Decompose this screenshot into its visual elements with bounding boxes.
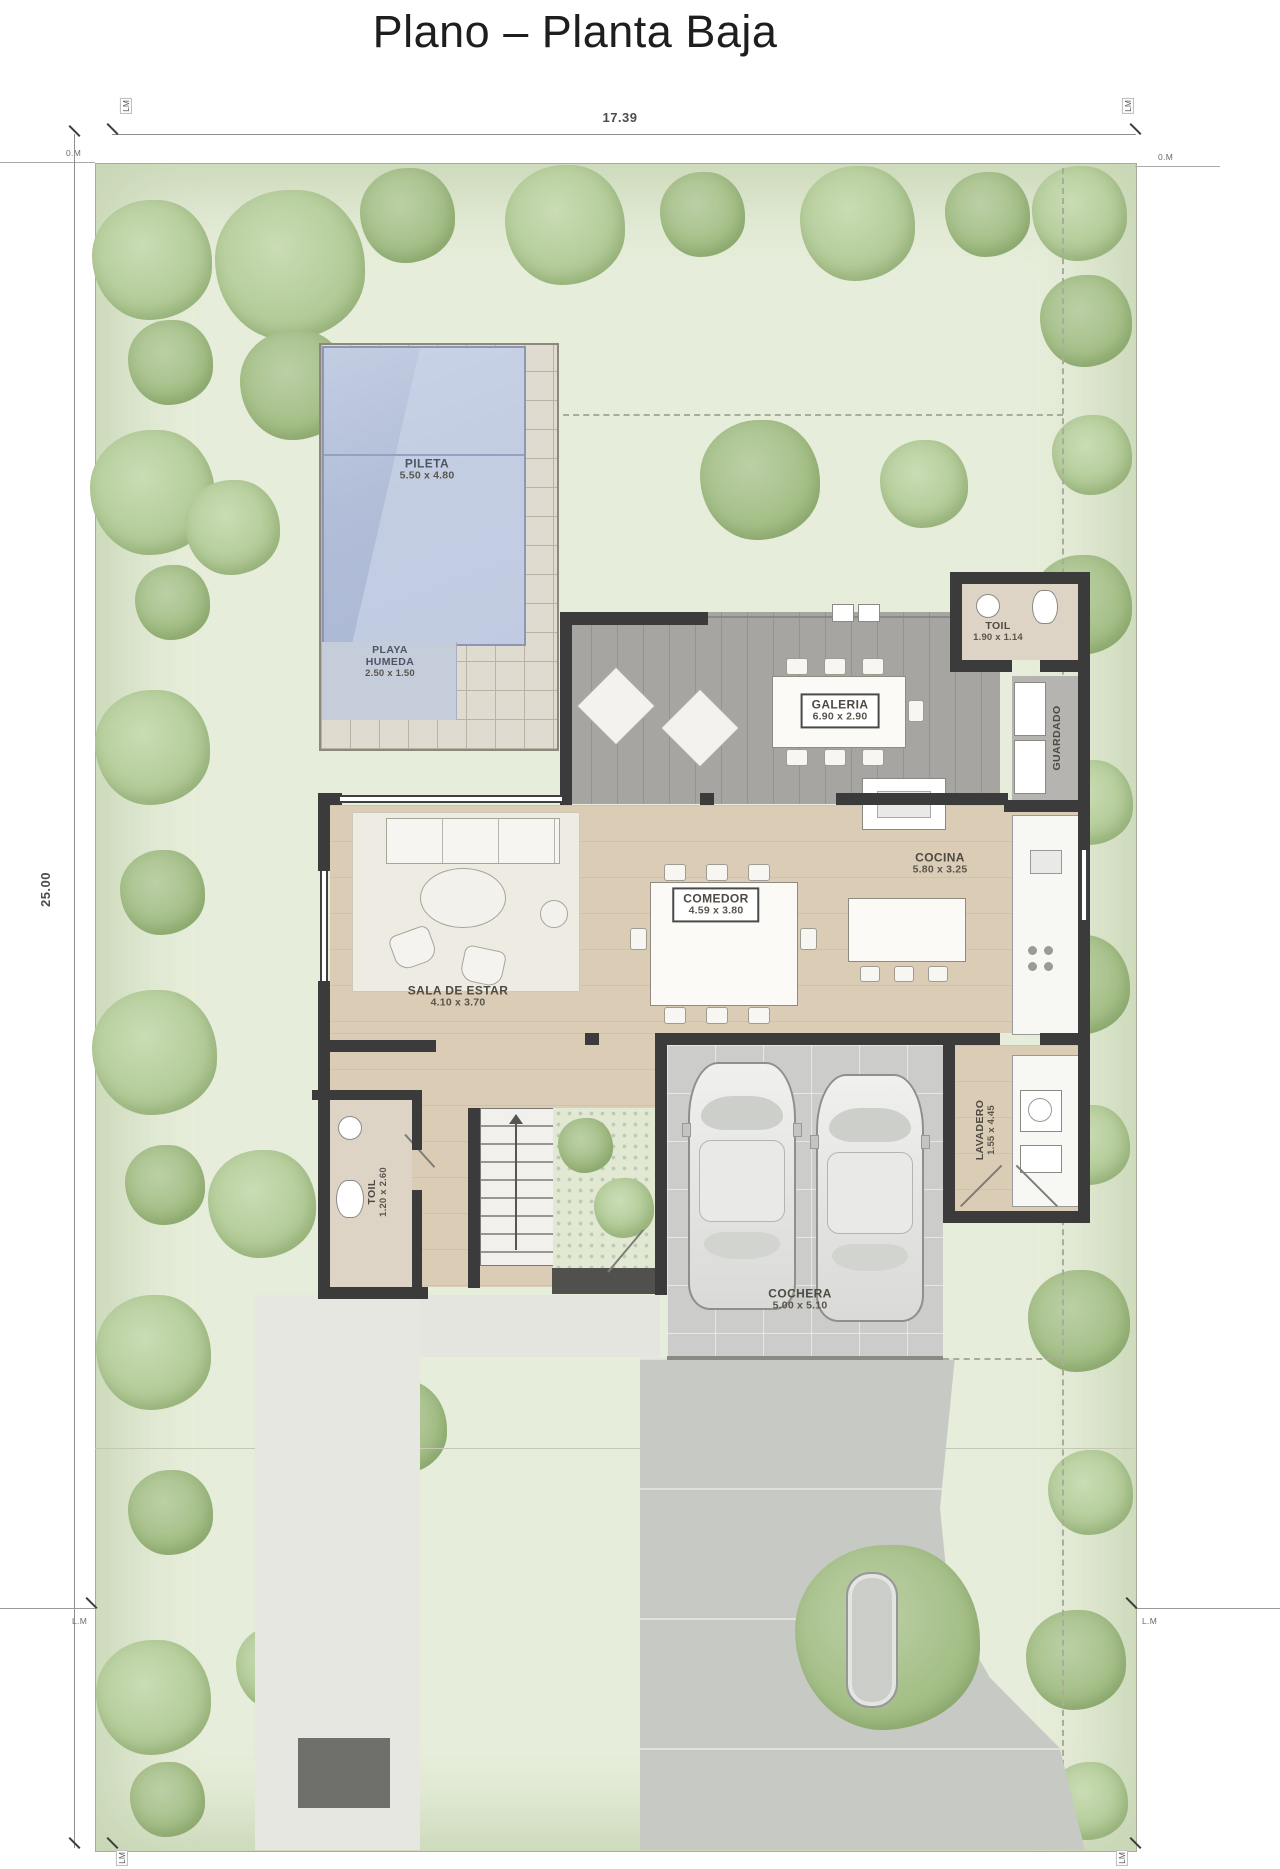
lm-line [0,1608,95,1609]
tree [1032,166,1127,261]
shelf [1014,682,1046,736]
tree [208,1150,316,1258]
lm-marker: LM [1122,98,1134,114]
tree [128,320,213,405]
wall [412,1090,422,1150]
tree [128,1470,213,1555]
wall [950,572,1090,584]
room-name: TOIL [985,620,1010,632]
label-cocina: COCINA 5.80 x 3.25 [913,851,968,876]
label-toil-top: TOIL 1.90 x 1.14 [973,621,1023,643]
windshield [701,1096,782,1130]
lot-width-dimension: 17.39 [570,110,670,125]
room-size: 5.00 x 5.10 [768,1301,831,1313]
washer-drum [1028,1098,1052,1122]
tree [1026,1610,1126,1710]
tree [880,440,968,528]
tree [1048,1450,1133,1535]
wc [1032,590,1058,624]
wall [950,660,1012,672]
wall [655,1033,667,1295]
wall [1078,572,1090,812]
wall [700,793,714,805]
counter-sink [1030,850,1062,874]
wall [318,1040,436,1052]
label-pileta: PILETA 5.50 x 4.80 [400,457,455,482]
room-size: 4.59 x 3.80 [683,906,748,918]
car-right [816,1074,924,1322]
mirror [793,1123,802,1137]
room-name: COCINA [915,850,965,864]
tree [1028,1270,1130,1372]
wall [560,612,708,625]
chair [908,700,924,722]
stove-burner [1028,962,1037,971]
wall [318,793,330,871]
wc [336,1180,364,1218]
lm-side-marker: L.M [1142,1616,1157,1626]
chair [862,658,884,675]
tree [92,200,212,320]
galeria-edge-line [708,616,952,618]
chair [664,1007,686,1024]
room-name: GUARDADO [1051,705,1063,770]
wall [943,1211,1090,1223]
floor-plan: Plano – Planta Baja [0,0,1280,1869]
garden-line [95,1448,1135,1449]
planter-oval [846,1572,898,1708]
lot-line-ext [1135,166,1220,167]
lot-line-ext [0,162,95,163]
room-name: PILETA [405,456,449,470]
chair [824,749,846,766]
stair-arrow-head [509,1114,523,1124]
label-galeria: GALERIA 6.90 x 2.90 [801,693,880,728]
wall [585,1033,599,1045]
zero-m-marker: 0.M [1158,152,1173,162]
rear-window [832,1244,909,1271]
label-lavadero: LAVADERO 1.55 x 4.45 [975,1100,997,1161]
room-size: 2.50 x 1.50 [353,668,427,679]
room-size: 6.90 x 2.90 [812,712,869,724]
chair [706,1007,728,1024]
kitchen-counter [1012,815,1080,1035]
chair [748,864,770,881]
tree [1052,415,1132,495]
lm-marker: LM [120,98,132,114]
label-guardado: GUARDADO [1052,705,1064,770]
tree [95,690,210,805]
stair-arrow [515,1122,517,1250]
tree [130,1762,205,1837]
washer [1020,1090,1062,1132]
chair [786,658,808,675]
courtyard-plant [594,1178,654,1238]
tree [185,480,280,575]
chair [748,1007,770,1024]
wall [468,1108,480,1288]
stool [860,966,880,982]
label-cochera: COCHERA 5.00 x 5.10 [768,1287,831,1312]
kitchen-island [848,898,966,962]
room-size: 5.80 x 3.25 [913,865,968,877]
wall [318,981,330,1299]
washbasin [976,594,1000,618]
chair [706,864,728,881]
washbasin [338,1116,362,1140]
wall [836,793,1008,805]
dimension-line-left [74,134,75,1848]
dimension-line-top [112,134,1136,135]
tree [125,1145,205,1225]
garage-door-line [667,1356,943,1360]
tree [700,420,820,540]
wall [943,1033,955,1223]
room-size: 5.50 x 4.80 [400,471,455,483]
lm-side-marker: L.M [72,1616,87,1626]
room-name: PLAYA HUMEDA [366,644,414,668]
pool-water-highlight [324,348,524,644]
stool [928,966,948,982]
staircase [480,1108,555,1266]
tree [660,172,745,257]
stove-burner [1028,946,1037,955]
stove-burner [1044,946,1053,955]
label-sala-de-estar: SALA DE ESTAR 4.10 x 3.70 [408,984,509,1009]
laundry-sink [1020,1145,1062,1173]
wall [1004,800,1090,812]
coffee-table [420,868,506,928]
tree [120,850,205,935]
setback-line-horizontal [553,414,1063,416]
room-name: TOIL [366,1179,378,1204]
wall [950,572,962,672]
room-name: LAVADERO [974,1100,986,1161]
tree [505,165,625,285]
tree [360,168,455,263]
stove-burner [1044,962,1053,971]
wall [655,1033,955,1045]
room-size: 4.10 x 3.70 [408,998,509,1010]
mirror [682,1123,691,1137]
rear-window [704,1232,781,1259]
room-name: GALERIA [812,697,869,711]
label-comedor: COMEDOR 4.59 x 3.80 [672,887,759,922]
room-name: SALA DE ESTAR [408,983,509,997]
chair [824,658,846,675]
galeria-step [832,604,854,622]
room-size: 1.55 x 4.45 [987,1100,998,1161]
car-roof [827,1152,912,1235]
entry-path [420,1295,660,1357]
car-roof [699,1140,784,1223]
room-size: 1.20 x 2.60 [379,1167,390,1217]
chair [786,749,808,766]
room-size: 1.90 x 1.14 [973,633,1023,644]
tree [92,990,217,1115]
tree [945,172,1030,257]
chair [630,928,647,950]
shelf [1014,740,1046,794]
side-table [540,900,568,928]
wall [312,1090,422,1100]
lm-marker: LM [116,1850,128,1866]
chair [862,749,884,766]
room-name: COCHERA [768,1286,831,1300]
chair [800,928,817,950]
garage-line-ext [943,1358,1063,1360]
mirror [810,1135,819,1149]
sofa [386,818,560,864]
stool [894,966,914,982]
label-playa-humeda: PLAYA HUMEDA 2.50 x 1.50 [353,645,427,679]
tree [215,190,365,340]
window [1080,850,1088,920]
chair [664,864,686,881]
page-title: Plano – Planta Baja [0,6,1150,58]
window [340,795,562,803]
dark-paver [298,1738,390,1808]
lm-line [1135,1608,1280,1609]
wall [412,1190,422,1290]
window [320,871,328,981]
label-toil-bottom: TOIL 1.20 x 2.60 [367,1167,389,1217]
pool-water [322,346,526,646]
mirror [921,1135,930,1149]
courtyard-plant [558,1118,613,1173]
tree [135,565,210,640]
lot-height-dimension: 25.00 [38,872,53,907]
car-left [688,1062,796,1310]
wall [560,612,572,805]
galeria-step [858,604,880,622]
room-name: COMEDOR [683,891,748,905]
tree [1040,275,1132,367]
lm-marker: LM [1116,1850,1128,1866]
tree [96,1295,211,1410]
wall [955,1033,1000,1045]
tree [96,1640,211,1755]
tree [800,166,915,281]
wall [1040,1033,1090,1045]
windshield [829,1108,910,1142]
